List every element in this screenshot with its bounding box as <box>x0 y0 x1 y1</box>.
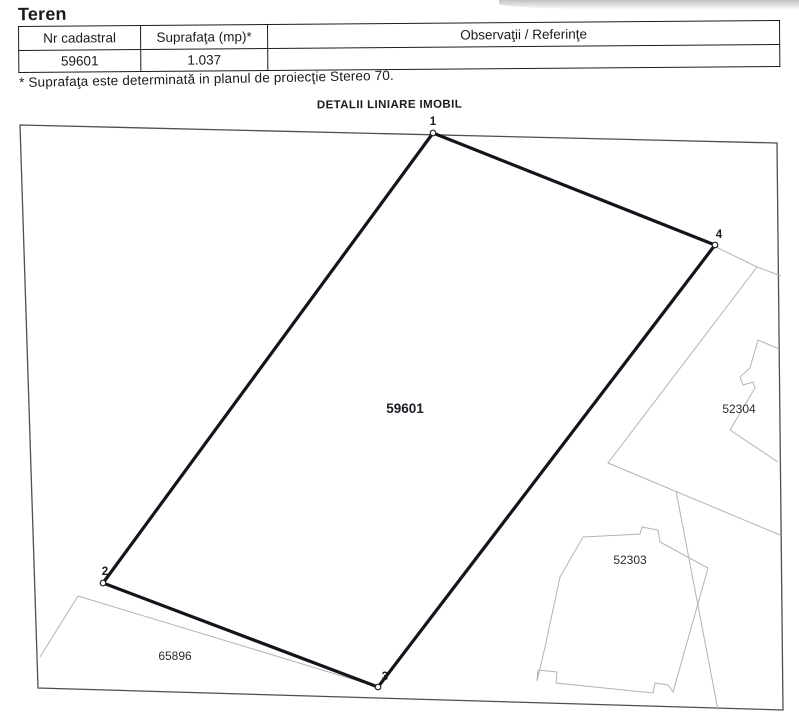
vertex-label-1: 1 <box>430 116 437 128</box>
vertex-marker-3 <box>375 684 381 690</box>
main-parcel-label: 59601 <box>386 401 424 416</box>
cadastral-map: 523045230365896143259601 <box>0 0 799 720</box>
map-frame <box>20 125 783 710</box>
vertex-label-2: 2 <box>102 566 108 578</box>
neighbor-boundary-line-3 <box>40 596 78 657</box>
neighbor-boundary-line-0 <box>716 247 781 276</box>
neighbor-parcel-label-65896: 65896 <box>158 649 192 663</box>
vertex-marker-1 <box>430 130 436 136</box>
vertex-marker-4 <box>712 242 718 248</box>
neighbor-boundary-line-6 <box>537 527 708 693</box>
cadastral-document-page: Teren Nr cadastral Suprafaţa (mp)* Obser… <box>0 0 799 720</box>
neighbor-boundary-line-2 <box>676 491 718 710</box>
vertex-marker-2 <box>100 580 106 586</box>
neighbor-boundary-line-4 <box>78 596 375 686</box>
vertex-label-3: 3 <box>382 671 388 683</box>
neighbor-boundary-line-1 <box>608 267 780 535</box>
vertex-label-4: 4 <box>716 229 723 241</box>
neighbor-boundary-line-5 <box>730 340 779 462</box>
neighbor-parcel-label-52303: 52303 <box>613 553 647 567</box>
neighbor-parcel-label-52304: 52304 <box>722 402 756 416</box>
